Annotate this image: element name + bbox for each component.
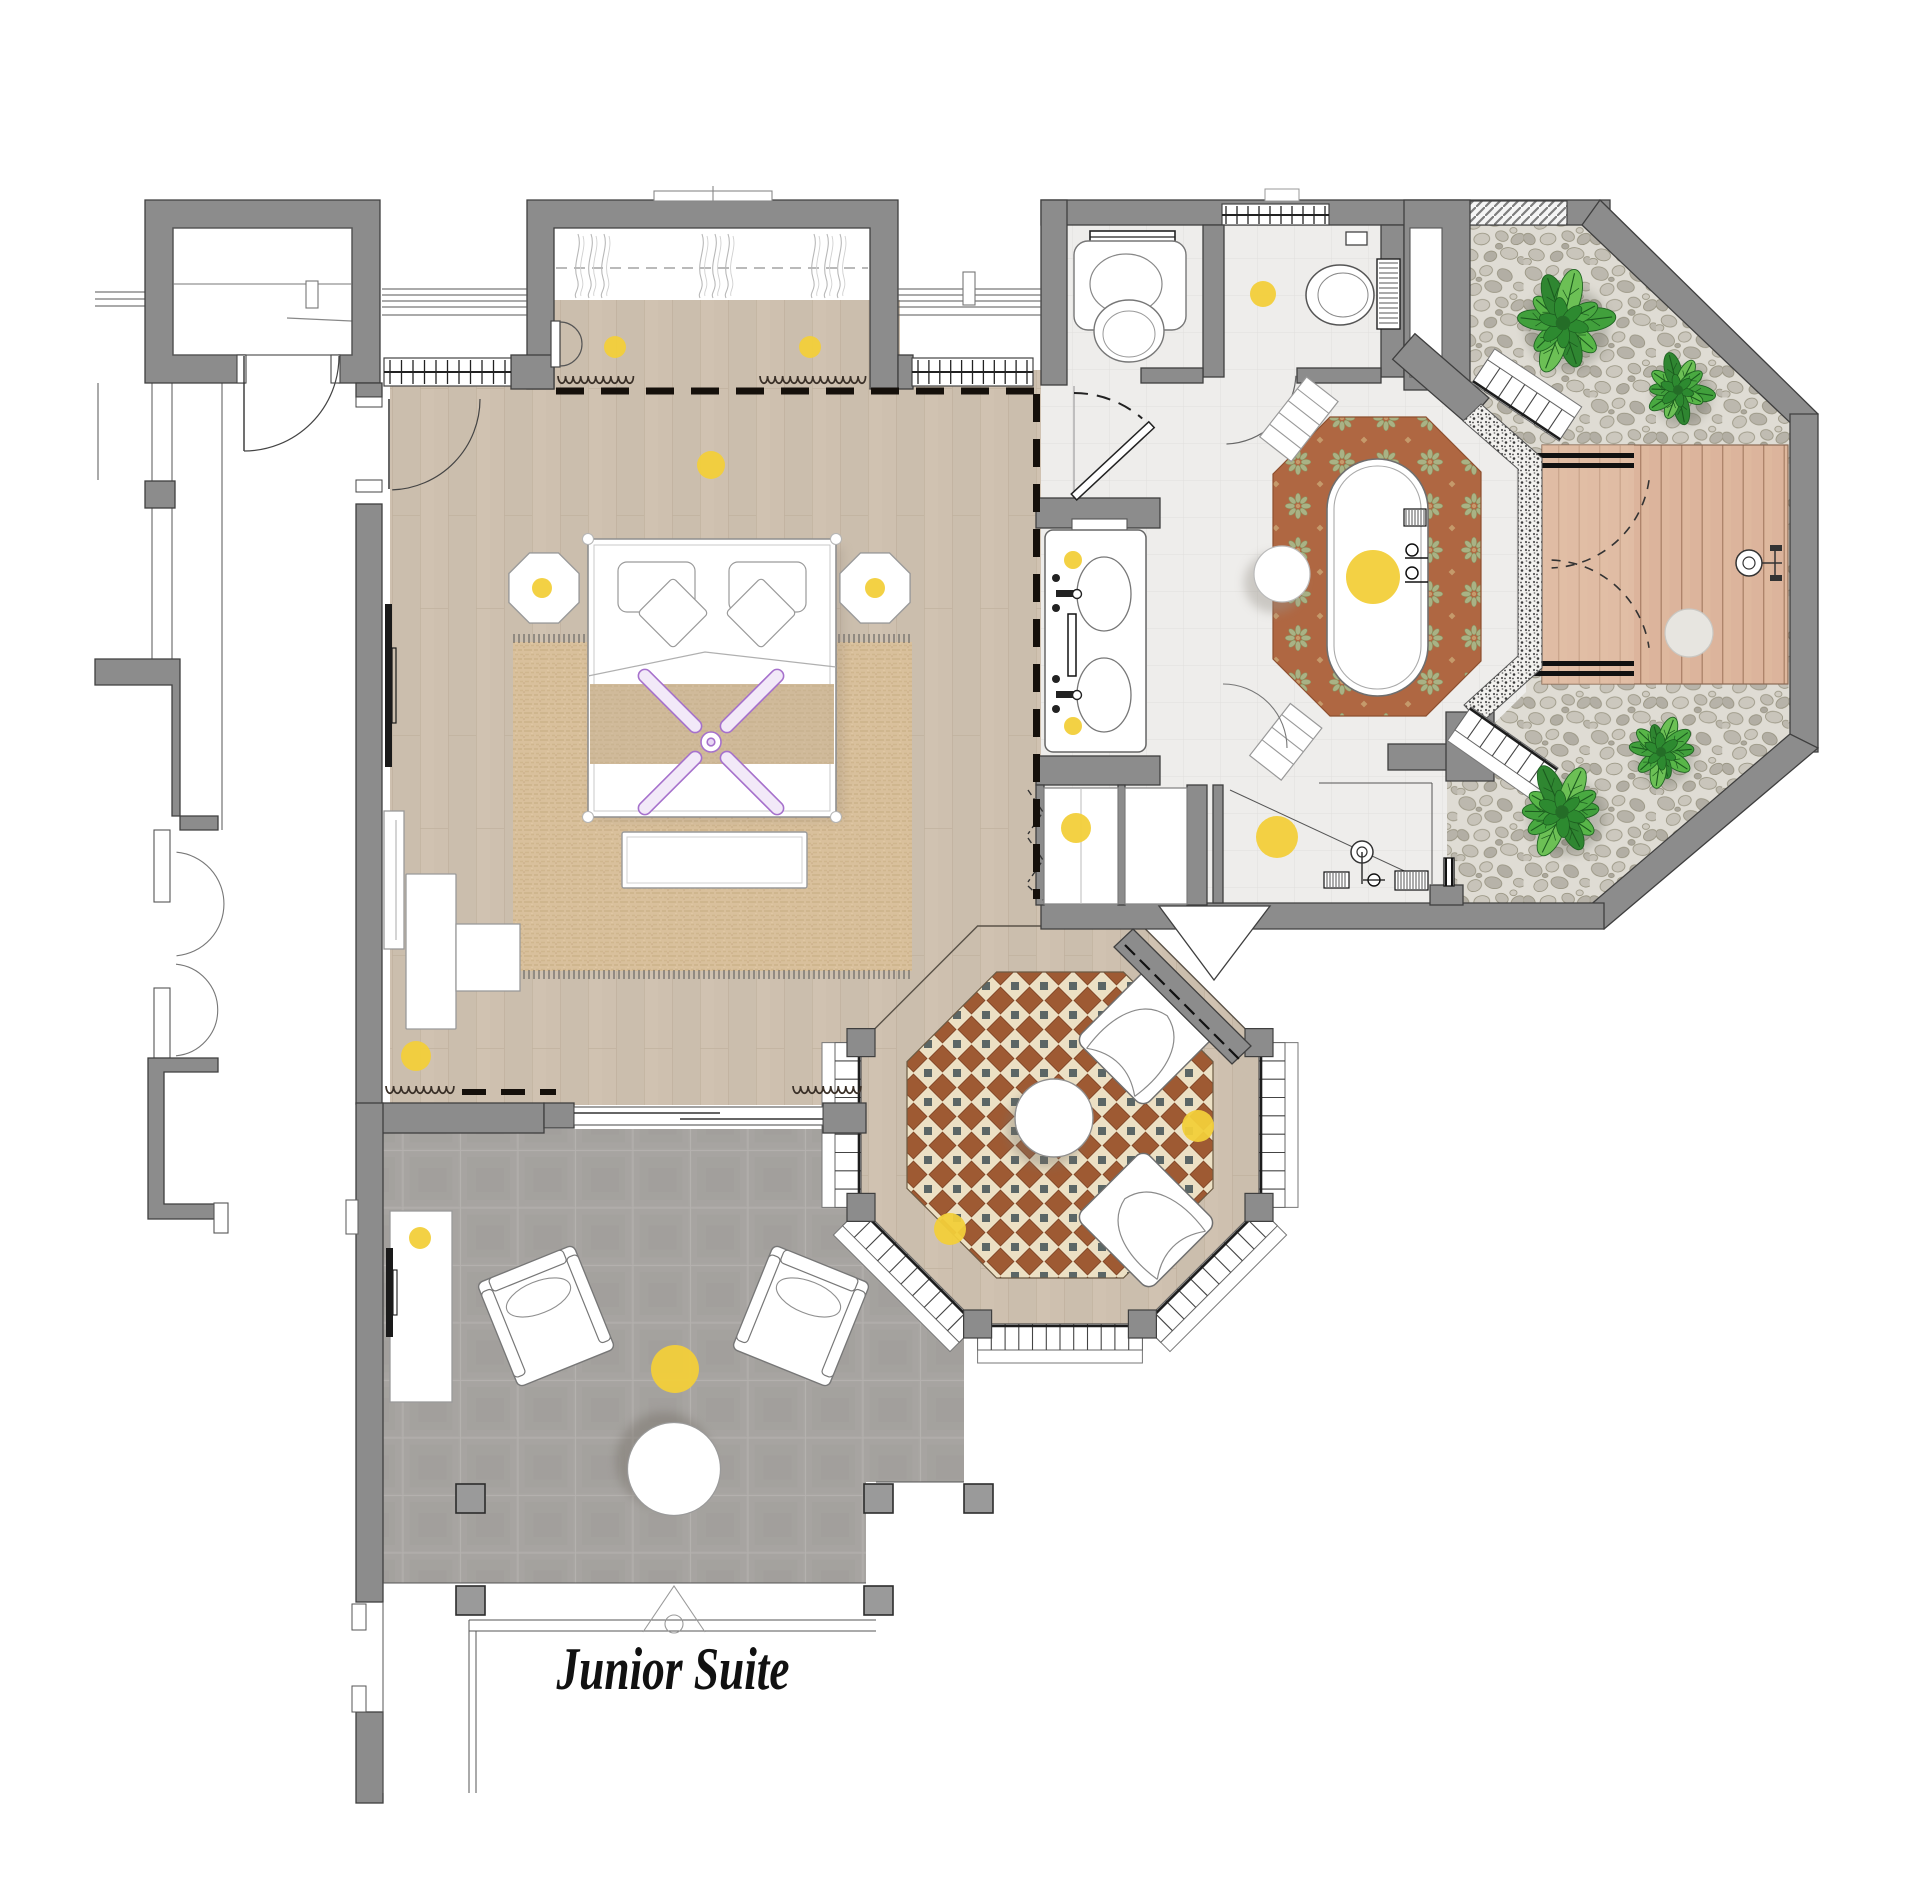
svg-text:Junior Suite: Junior Suite (556, 1636, 790, 1702)
